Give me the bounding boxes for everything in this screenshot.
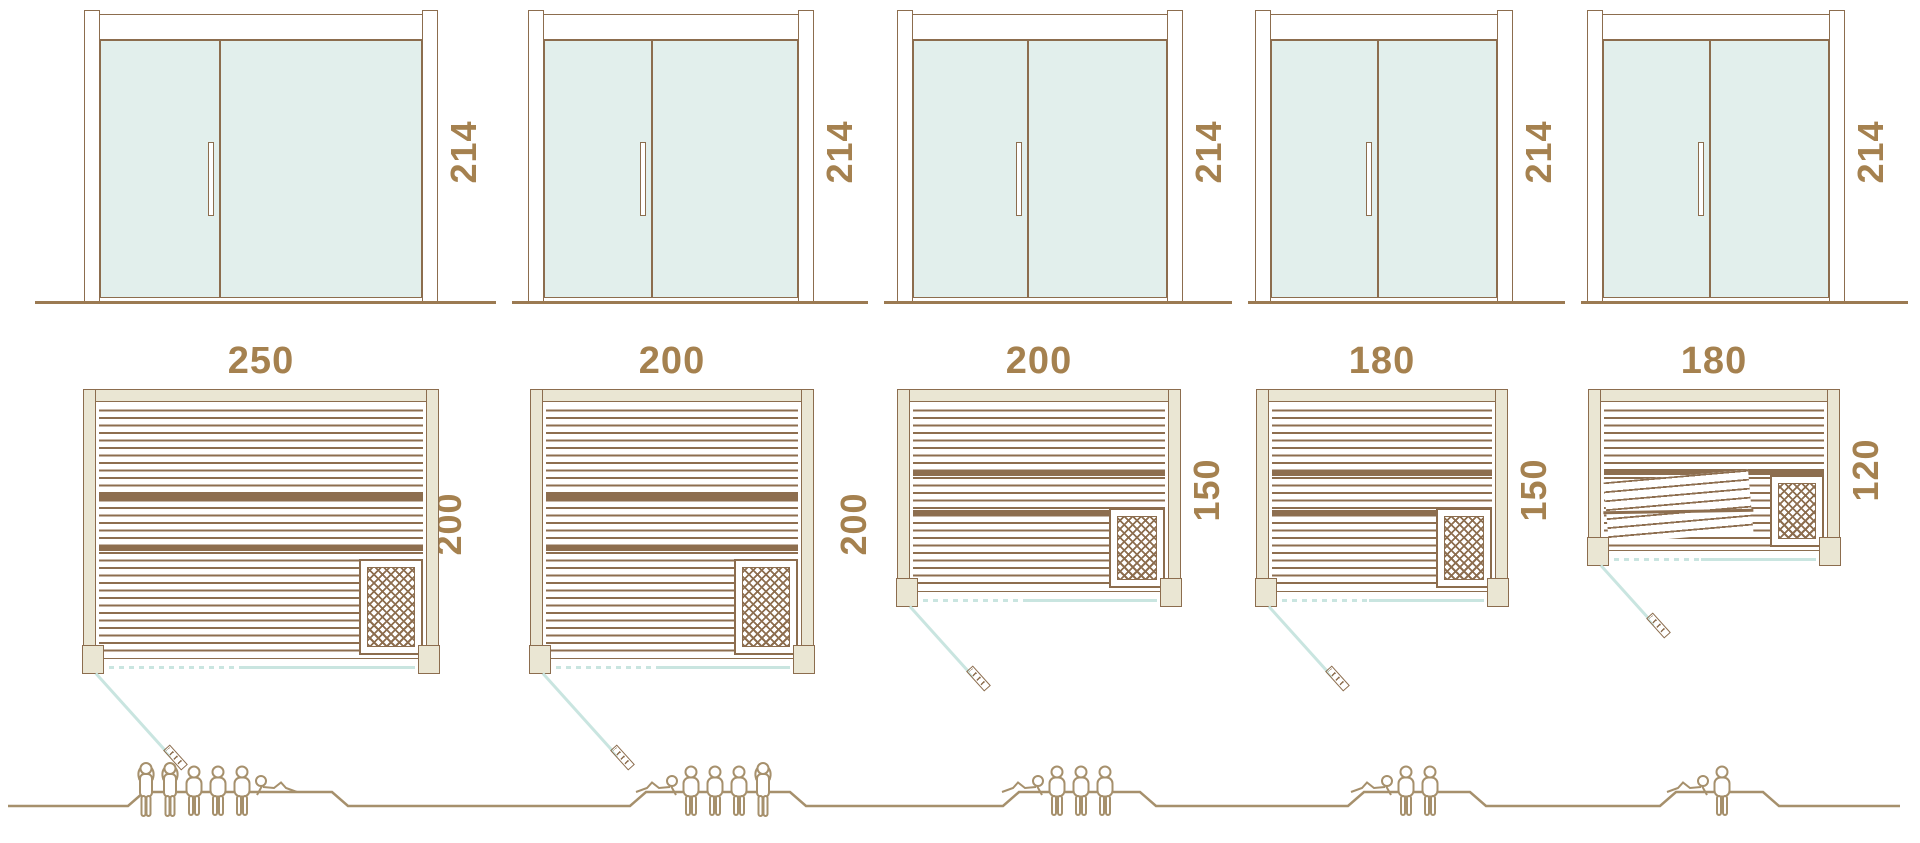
heater-icon	[359, 559, 423, 655]
door-opening-line	[1369, 599, 1484, 602]
ground-line	[884, 301, 1232, 304]
door-post-right	[1497, 10, 1513, 303]
person-seated-icon	[1044, 765, 1070, 817]
door-opening-dashed-line	[109, 666, 243, 669]
heater-icon	[734, 559, 798, 655]
person-reclining-icon	[632, 773, 680, 799]
door-opening-dashed-line	[1614, 558, 1701, 561]
corner-post-left	[529, 645, 551, 674]
door-glass-divider	[219, 41, 221, 297]
heater-grille	[1778, 483, 1816, 539]
door-post-right	[422, 10, 438, 303]
bench-slats	[95, 401, 427, 659]
corner-post-left	[1255, 578, 1277, 607]
door-opening-line	[658, 666, 790, 669]
person-seated-icon	[702, 765, 728, 817]
person-reclining-icon	[998, 773, 1046, 799]
door-opening-dashed-line	[556, 666, 658, 669]
door-glass-divider	[1027, 41, 1029, 297]
bench-edge	[1272, 470, 1492, 476]
door-handle	[1016, 142, 1022, 216]
corner-post-left	[82, 645, 104, 674]
door-opening-line	[1701, 558, 1816, 561]
door-handle	[1366, 142, 1372, 216]
corner-post-left	[896, 578, 918, 607]
door-post-left	[897, 10, 913, 303]
door-handle	[208, 142, 214, 216]
bench-diagonal-line	[1603, 509, 1753, 514]
floor-plan-1	[83, 389, 439, 659]
capacity-group-2	[634, 760, 776, 818]
door-swing-line	[95, 672, 172, 757]
corner-post-right	[1160, 578, 1182, 607]
wall-right	[426, 389, 439, 659]
door-post-right	[798, 10, 814, 303]
door-glass	[1603, 40, 1829, 298]
plan-depth-label-3: 150	[1185, 430, 1229, 550]
bench-slats	[909, 401, 1169, 592]
bench-edge	[99, 494, 423, 500]
door-opening-line	[243, 666, 415, 669]
door-glass-divider	[1709, 41, 1711, 297]
door-height-label-3: 214	[1187, 92, 1231, 212]
door-glass-divider	[1377, 41, 1379, 297]
door-handle	[640, 142, 646, 216]
door-post-right	[1167, 10, 1183, 303]
person-standing-icon	[750, 760, 776, 818]
capacity-group-3	[1000, 760, 1118, 818]
door-glass-divider	[651, 41, 653, 297]
person-seated-icon	[229, 765, 255, 817]
bench-slats	[1600, 401, 1828, 551]
door-height-label-2: 214	[818, 92, 862, 212]
person-standing-icon	[157, 760, 183, 818]
door-leaf-icon	[610, 744, 635, 770]
door-leaf-icon	[1325, 665, 1350, 691]
heater-grille	[1444, 516, 1484, 580]
door-header	[1602, 14, 1830, 40]
bench-slats	[1268, 401, 1496, 592]
person-standing-icon	[133, 760, 159, 818]
heater-grille	[742, 567, 790, 647]
plan-depth-label-4: 150	[1512, 430, 1556, 550]
plan-width-label-5: 180	[1614, 340, 1814, 383]
person-seated-icon	[1393, 765, 1419, 817]
floor-plan-4	[1256, 389, 1508, 592]
door-swing-line	[542, 672, 619, 757]
door-post-left	[1255, 10, 1271, 303]
door-header	[912, 14, 1168, 40]
door-glass	[544, 40, 798, 298]
plan-width-label-3: 200	[939, 340, 1139, 383]
heater-icon	[1109, 508, 1165, 588]
capacity-group-5	[1665, 760, 1735, 818]
plan-depth-label-5: 120	[1844, 410, 1888, 530]
door-post-left	[528, 10, 544, 303]
heater-grille	[1117, 516, 1157, 580]
door-height-label-4: 214	[1517, 92, 1561, 212]
bench-edge	[546, 545, 798, 551]
plan-width-label-2: 200	[572, 340, 772, 383]
door-header	[543, 14, 799, 40]
door-handle	[1698, 142, 1704, 216]
door-height-label-1: 214	[442, 92, 486, 212]
floor-plan-3	[897, 389, 1181, 592]
door-post-left	[84, 10, 100, 303]
bench-edge	[913, 470, 1165, 476]
person-seated-icon	[205, 765, 231, 817]
wall-right	[1827, 389, 1840, 551]
door-opening-dashed-line	[1282, 599, 1369, 602]
person-reclining-icon	[1663, 773, 1711, 799]
floor-plan-5	[1588, 389, 1840, 551]
door-opening-dashed-line	[923, 599, 1025, 602]
floor-plan-2	[530, 389, 814, 659]
bench-edge	[99, 545, 423, 551]
door-header	[99, 14, 423, 40]
door-elevation-4	[1255, 10, 1513, 303]
person-seated-icon	[1092, 765, 1118, 817]
door-elevation-1	[84, 10, 438, 303]
bench-edge	[546, 494, 798, 500]
person-seated-icon	[678, 765, 704, 817]
wall-right	[801, 389, 814, 659]
door-opening-line	[1025, 599, 1157, 602]
wall-right	[1495, 389, 1508, 592]
heater-icon	[1770, 475, 1824, 547]
plan-depth-label-2: 200	[832, 464, 876, 584]
door-leaf-icon	[1646, 612, 1671, 638]
door-glass	[913, 40, 1167, 298]
person-seated-icon	[726, 765, 752, 817]
person-seated-icon	[1068, 765, 1094, 817]
wall-right	[1168, 389, 1181, 592]
door-glass	[1271, 40, 1497, 298]
ground-line	[1581, 301, 1908, 304]
door-swing-line	[1268, 605, 1333, 677]
door-header	[1270, 14, 1498, 40]
door-glass	[100, 40, 422, 298]
corner-post-left	[1587, 537, 1609, 566]
ground-line	[512, 301, 868, 304]
person-seated-icon	[1417, 765, 1443, 817]
plan-width-label-1: 250	[161, 340, 361, 383]
corner-post-right	[793, 645, 815, 674]
plan-width-label-4: 180	[1282, 340, 1482, 383]
door-post-left	[1587, 10, 1603, 303]
door-elevation-5	[1587, 10, 1845, 303]
bench-slats	[542, 401, 802, 659]
corner-post-right	[1819, 537, 1841, 566]
door-elevation-3	[897, 10, 1183, 303]
capacity-group-1	[135, 760, 301, 818]
heater-icon	[1436, 508, 1492, 588]
person-seated-icon	[1709, 765, 1735, 817]
person-seated-icon	[181, 765, 207, 817]
door-height-label-5: 214	[1849, 92, 1893, 212]
person-reclining-icon	[253, 773, 301, 799]
ground-line	[35, 301, 496, 304]
door-swing-line	[909, 605, 974, 677]
angled-bench	[1604, 470, 1753, 545]
door-leaf-icon	[966, 665, 991, 691]
sauna-size-diagram: 214 214 214 214 214 250 200 200 180 180 …	[0, 0, 1920, 843]
ground-line	[1248, 301, 1565, 304]
heater-grille	[367, 567, 415, 647]
door-elevation-2	[528, 10, 814, 303]
person-reclining-icon	[1347, 773, 1395, 799]
corner-post-right	[418, 645, 440, 674]
capacity-group-4	[1349, 760, 1443, 818]
corner-post-right	[1487, 578, 1509, 607]
door-post-right	[1829, 10, 1845, 303]
